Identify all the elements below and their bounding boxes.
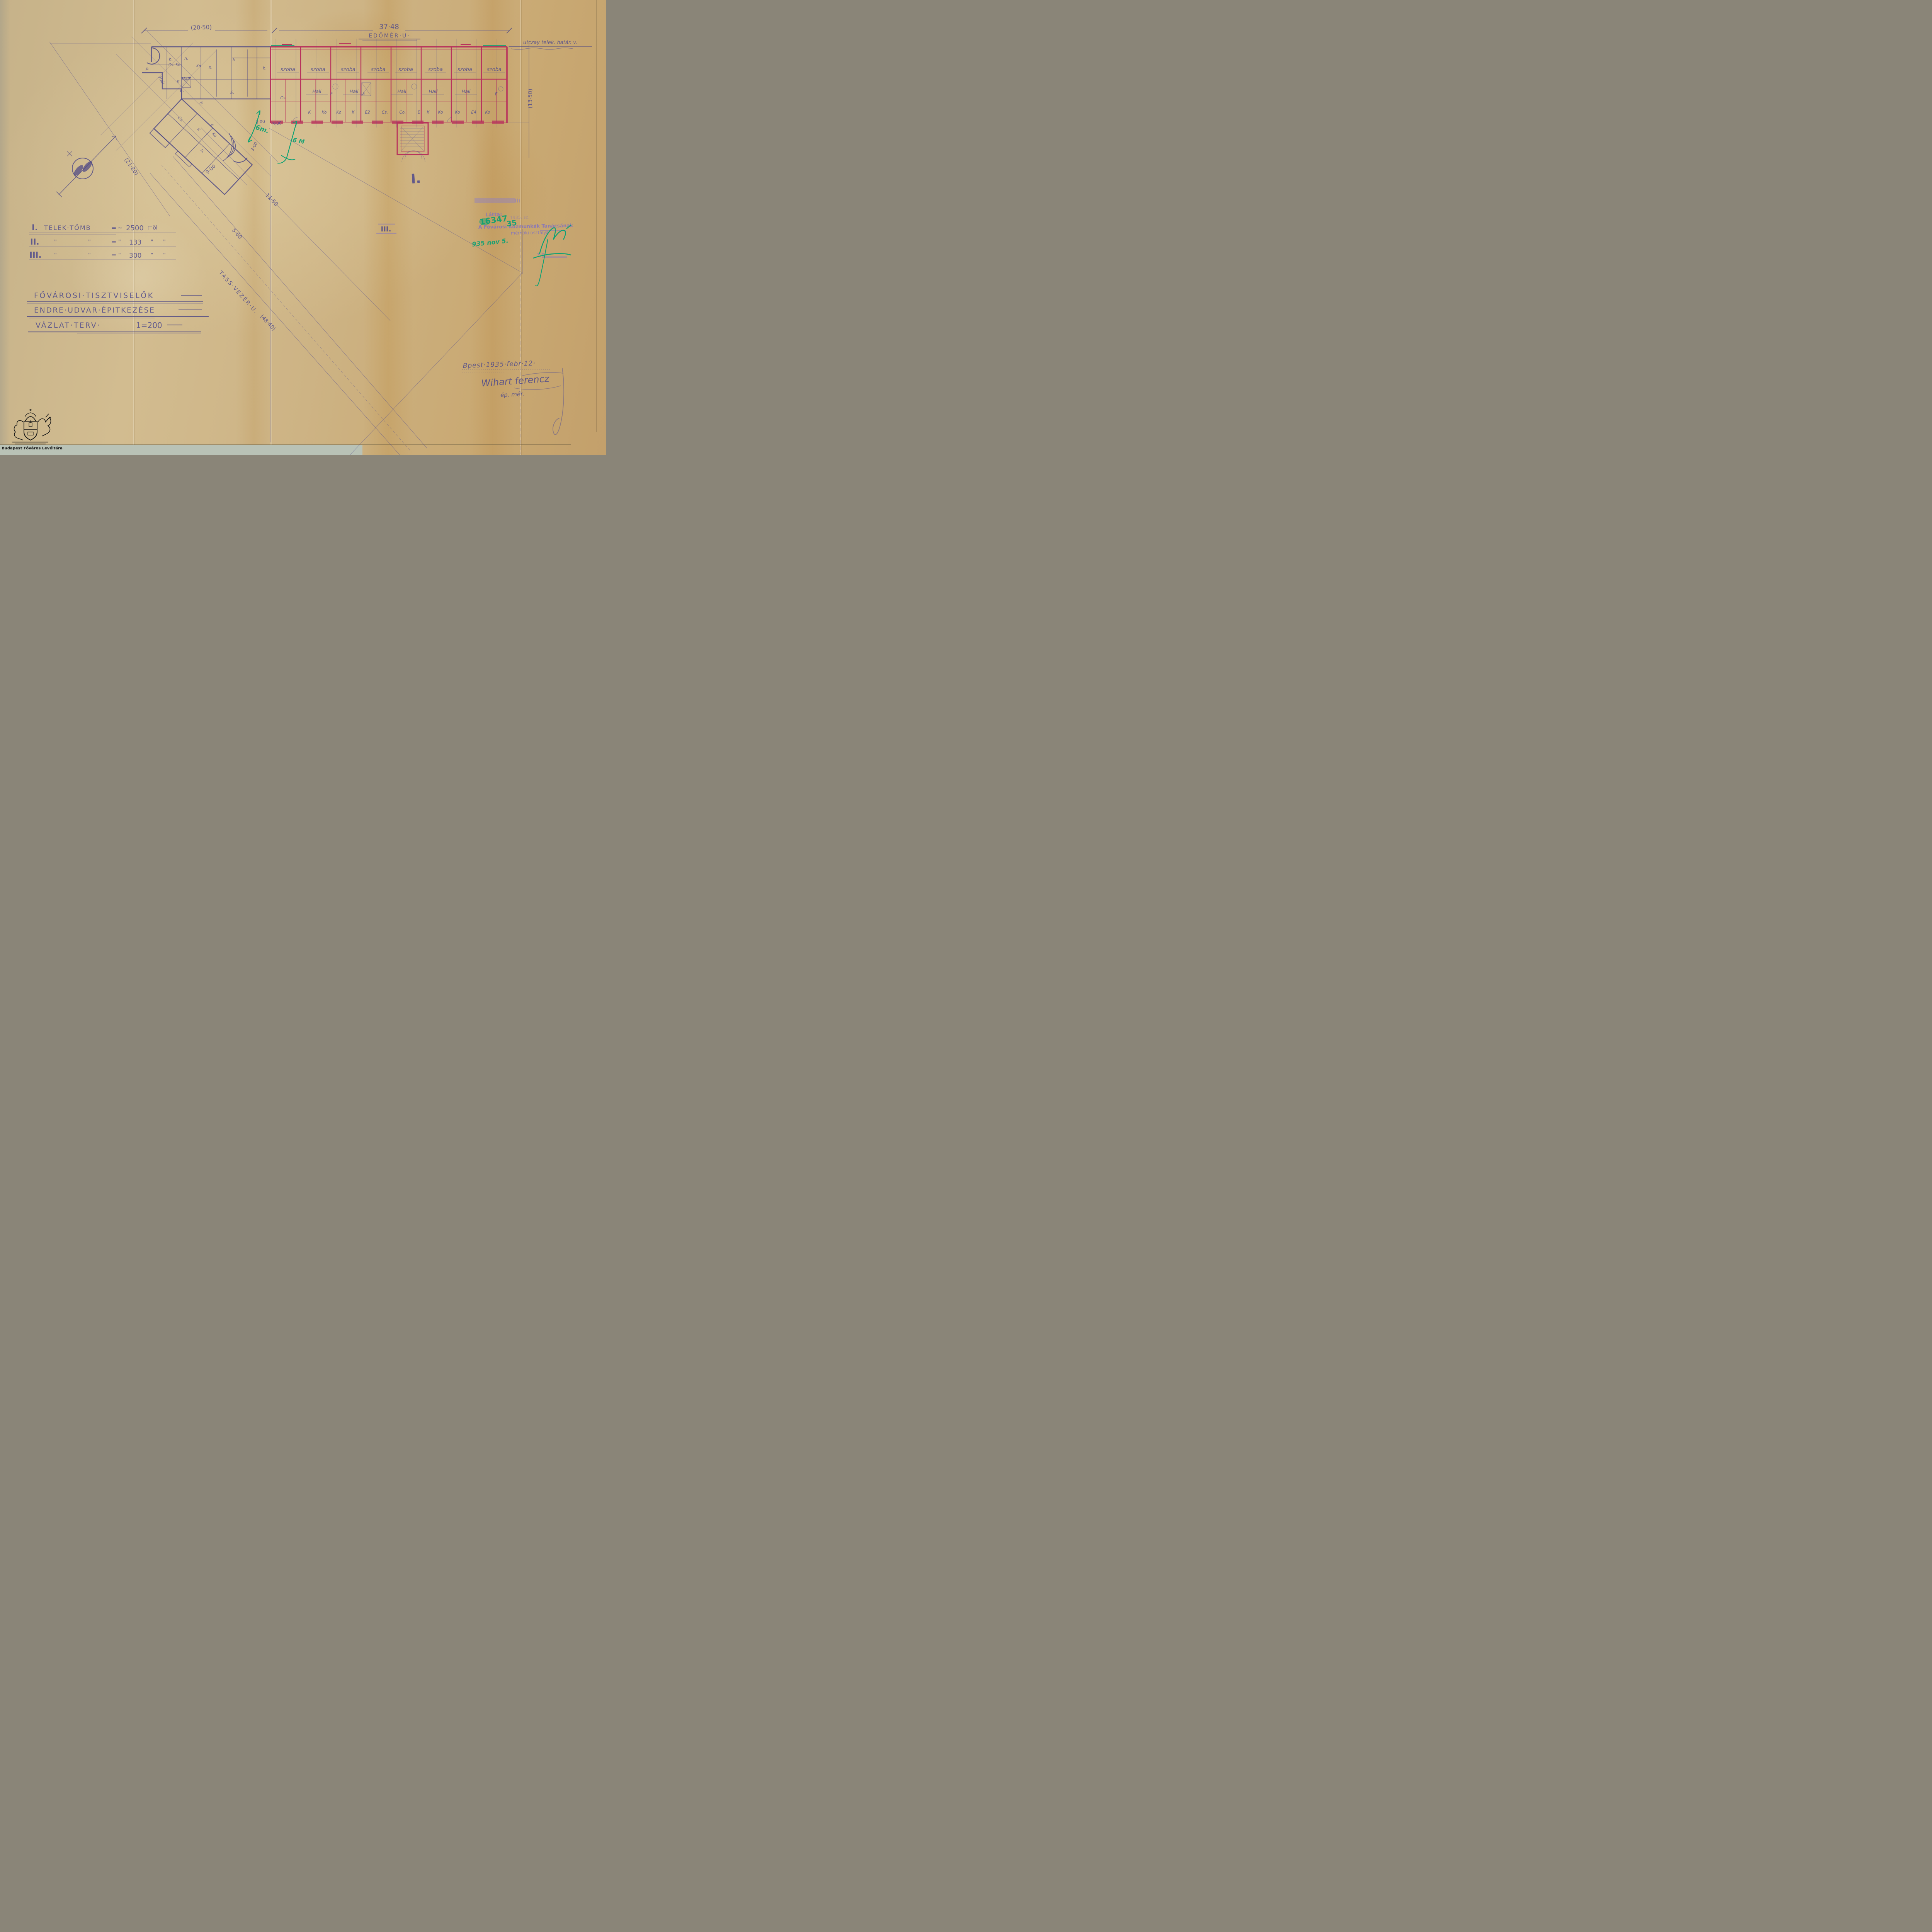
stamp-bar bbox=[474, 198, 515, 203]
coat-of-arms-icon bbox=[12, 409, 51, 444]
room-label: K bbox=[427, 110, 430, 115]
room-label-f: F bbox=[330, 91, 333, 96]
equals: = bbox=[111, 224, 116, 231]
title-line-2: ENDRE·UDVAR·ÉPITKEZÉSE bbox=[34, 306, 155, 315]
block-marker-III: III. bbox=[381, 225, 391, 233]
area-value: 300 bbox=[129, 252, 141, 260]
room-label-cs: Cs. bbox=[281, 95, 287, 100]
room-label: Hall bbox=[182, 77, 190, 82]
room-label: szoba bbox=[371, 67, 386, 73]
ditto: " bbox=[54, 238, 57, 245]
room-label: É4 bbox=[471, 110, 476, 115]
green-6m-note-1: 6m. bbox=[254, 124, 270, 135]
architect-signature: Wihart ferencz bbox=[481, 373, 550, 389]
title-scale: 1=200 bbox=[136, 321, 162, 330]
red-wing-walls bbox=[270, 43, 507, 155]
dim-20-50: (20·50) bbox=[190, 24, 212, 31]
dim-5-60: 5·60 bbox=[231, 227, 243, 240]
archive-logo: Budapest Főváros Levéltára bbox=[2, 409, 63, 451]
ditto: " bbox=[54, 252, 57, 259]
room-label: É. bbox=[230, 90, 234, 95]
footer-date: Bpest·1935·febr·12· bbox=[463, 359, 536, 370]
dim-3-00-b: 3·00 bbox=[272, 121, 282, 126]
room-label: K bbox=[308, 110, 311, 115]
ditto: " bbox=[151, 252, 153, 259]
room-label: É2 bbox=[365, 110, 370, 115]
room-label: h. bbox=[209, 65, 213, 70]
room-label: szoba bbox=[428, 67, 443, 73]
area-value: 2500 bbox=[126, 224, 144, 232]
stamp-dept: mérnöki osztálya bbox=[511, 230, 549, 236]
title-block: FŐVÁROSI·TISZTVISELŐK ENDRE·UDVAR·ÉPITKE… bbox=[27, 291, 209, 334]
row-numeral: III. bbox=[29, 250, 41, 260]
room-label: p. bbox=[145, 66, 150, 71]
block-marker-I: I. bbox=[410, 171, 421, 187]
griffin-supporter-icon bbox=[38, 414, 51, 436]
row-numeral: II. bbox=[30, 237, 39, 247]
room-label: Ko bbox=[337, 110, 342, 115]
boundary-note: utczay telek. határ. v. bbox=[523, 40, 577, 46]
area-table-row-2: II. " " = " 133 " " bbox=[29, 237, 176, 247]
room-label-f: F bbox=[362, 91, 365, 96]
room-label: É. bbox=[180, 88, 184, 93]
left-wing-construction-lines bbox=[50, 31, 278, 185]
room-label: szoba bbox=[398, 67, 413, 73]
green-6m-note-2: 6 M bbox=[292, 136, 305, 145]
room-label: szoba bbox=[487, 67, 502, 73]
left-wing-walls bbox=[142, 47, 270, 199]
title-line-3: VÁZLAT·TERV· bbox=[36, 321, 101, 330]
equals: = bbox=[111, 252, 116, 259]
lion-supporter-icon bbox=[14, 420, 23, 440]
green-date: 935 nov 5. bbox=[471, 237, 509, 248]
stamp-bar-fragment bbox=[515, 199, 519, 202]
dim-37-48: 37·48 bbox=[379, 23, 399, 31]
area-table: I. TELEK·TÖMB = ~ 2500 □öl II. " " = " 1… bbox=[29, 223, 176, 260]
ditto: " bbox=[88, 238, 91, 245]
room-label: Co. bbox=[399, 110, 406, 115]
green-ink-annotations: 16347 35 935 nov 5. 6m. 6 M bbox=[248, 111, 571, 286]
approx-mark: ~ bbox=[117, 224, 122, 231]
room-label: h. bbox=[263, 66, 267, 71]
room-label: h. bbox=[184, 56, 188, 61]
ditto: " bbox=[118, 238, 121, 245]
room-label: h bbox=[233, 57, 235, 62]
area-value: 133 bbox=[129, 239, 141, 247]
room-label: Ko bbox=[455, 110, 460, 115]
room-label: Hall bbox=[397, 89, 406, 94]
room-label: Ko bbox=[211, 132, 218, 138]
room-label: K bbox=[196, 127, 201, 133]
equals: = bbox=[111, 238, 116, 246]
room-label: Ko bbox=[322, 110, 327, 115]
compass-north-arrow bbox=[56, 136, 116, 197]
dim-48-40: (48·40) bbox=[259, 313, 277, 332]
architect-role: ép. mér. bbox=[500, 390, 524, 398]
dim-9-00: 9·00 bbox=[205, 163, 217, 175]
room-label: Cs. bbox=[177, 116, 184, 123]
room-label: Hall bbox=[429, 89, 438, 94]
room-label: Cs. Ko bbox=[168, 63, 180, 67]
room-label: Ko bbox=[438, 110, 443, 115]
scanned-blueprint-page: (20·50) 37·48 EDÖMÉR·U· utczay telek. ha… bbox=[0, 0, 606, 455]
room-label-f: F bbox=[495, 92, 498, 97]
area-table-row-3: III. " " = " 300 " " bbox=[29, 250, 176, 260]
room-label: Ko bbox=[485, 110, 490, 115]
room-label: szoba bbox=[311, 67, 325, 73]
room-label: szoba bbox=[457, 67, 472, 73]
row-numeral: I. bbox=[32, 223, 38, 232]
room-label: É bbox=[418, 110, 420, 115]
room-label: Hall bbox=[461, 89, 471, 94]
ditto: " bbox=[163, 238, 166, 245]
room-label: szoba bbox=[341, 67, 355, 73]
dim-13-50: (13·50) bbox=[527, 88, 534, 108]
ditto: " bbox=[151, 238, 153, 245]
dim-11-50: 11·50 bbox=[264, 192, 279, 207]
title-line-1: FŐVÁROSI·TISZTVISELŐK bbox=[34, 291, 154, 300]
room-label: h. bbox=[169, 57, 173, 62]
approval-stamp: Látta: 1935. sz. A Fővárosi Közmunkák Ta… bbox=[474, 198, 573, 258]
room-label: Hall bbox=[157, 75, 165, 85]
dim-3-00-c: 3·00 bbox=[250, 141, 259, 152]
row-label: TELEK·TÖMB bbox=[44, 224, 91, 231]
room-label: K bbox=[352, 110, 355, 115]
signature-paraph bbox=[553, 368, 564, 435]
street-name-edomer: EDÖMÉR·U· bbox=[369, 32, 410, 39]
room-label: Hall bbox=[312, 89, 321, 94]
ditto: " bbox=[163, 252, 166, 259]
footer-signature-block: Bpest·1935·febr·12· Wihart ferencz ép. m… bbox=[462, 359, 564, 434]
street-name-tass: TASS·VEZÉR·U. bbox=[217, 269, 260, 315]
room-label: Hall bbox=[349, 89, 359, 94]
area-unit: □öl bbox=[148, 225, 158, 231]
green-file-year: 35 bbox=[506, 218, 517, 228]
service-room-row: K Ko Ko K É2 Cs. Co. É K Ko Ko É4 Ko bbox=[308, 110, 490, 115]
room-label: szoba bbox=[281, 67, 295, 73]
archive-caption: Budapest Főváros Levéltára bbox=[2, 446, 63, 451]
block-marker-III-group: III. bbox=[376, 224, 396, 233]
room-label: h. bbox=[199, 100, 205, 107]
ditto: " bbox=[88, 252, 91, 259]
area-table-row-1: I. TELEK·TÖMB = ~ 2500 □öl bbox=[29, 223, 176, 235]
room-label: h. bbox=[199, 148, 206, 155]
floor-plan-drawing: (20·50) 37·48 EDÖMÉR·U· utczay telek. ha… bbox=[0, 0, 606, 455]
room-label: K bbox=[177, 80, 180, 84]
ditto: " bbox=[118, 252, 121, 259]
room-label: Cs. bbox=[382, 110, 388, 115]
room-label: Ko bbox=[196, 64, 201, 68]
stamp-signature-bars bbox=[542, 256, 567, 258]
red-wing-pencil-construction bbox=[276, 39, 529, 162]
